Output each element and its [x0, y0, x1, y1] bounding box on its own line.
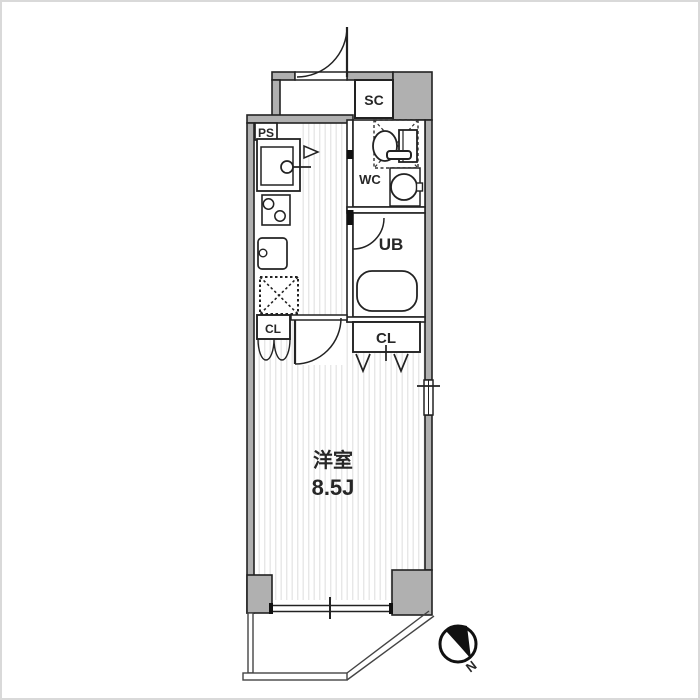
balcony	[243, 611, 434, 680]
room-door-header	[291, 315, 347, 320]
bathtub	[357, 271, 417, 311]
stove-burner-2	[275, 211, 285, 221]
balcony-window-jamb-left	[269, 603, 273, 614]
wall-left-main	[247, 123, 254, 613]
floor-plan-page: SC WC UB CL PS	[0, 0, 700, 700]
closet-kitchen-label: CL	[265, 322, 281, 336]
wash-basin-faucet	[417, 183, 423, 191]
washing-machine-drain	[259, 249, 267, 257]
wall-top-left	[272, 72, 295, 80]
wall-step-band	[247, 115, 353, 123]
wall-right-upper	[425, 120, 432, 380]
shoe-closet-label: SC	[364, 92, 383, 108]
wc-label: WC	[359, 172, 381, 187]
compass-north-label: N	[463, 658, 480, 676]
entrance-door-swing-arc	[297, 27, 347, 77]
closet-room-label: CL	[376, 330, 396, 347]
room-size-label: 8.5J	[312, 475, 355, 500]
entrance-hall	[280, 79, 355, 118]
floor-plan-drawing: SC WC UB CL PS	[0, 0, 700, 700]
balcony-rail-slant-outer	[347, 616, 434, 680]
unit-bath-label: UB	[379, 235, 404, 254]
toilet-seat-hinge	[387, 151, 411, 159]
faucet-handle	[281, 161, 293, 173]
wall-corner-top-right	[393, 72, 432, 120]
stove	[262, 195, 290, 225]
compass-icon: N	[440, 625, 480, 675]
balcony-window-jamb-right	[389, 603, 393, 614]
wash-basin	[390, 168, 423, 206]
wall-wc-ub-divider	[347, 207, 425, 213]
washing-machine-space	[258, 238, 287, 269]
door-frame-tick-wc	[347, 150, 354, 159]
door-frame-tick-ub	[347, 210, 354, 225]
room-name-label: 洋室	[313, 448, 353, 472]
wall-top-right	[347, 72, 393, 80]
entrance-door	[297, 27, 347, 77]
balcony-rail-left	[248, 613, 253, 673]
pipe-space-label: PS	[258, 126, 274, 140]
wall-right-lower	[425, 415, 432, 570]
balcony-rail-slant-inner	[347, 611, 429, 673]
wall-left-upper	[272, 80, 280, 117]
balcony-rail-bottom	[243, 673, 347, 680]
wall-block-bottom-left	[247, 575, 272, 613]
stove-burner-1	[263, 199, 273, 209]
wash-basin-bowl	[391, 174, 417, 200]
wall-block-bottom-right	[392, 570, 432, 615]
